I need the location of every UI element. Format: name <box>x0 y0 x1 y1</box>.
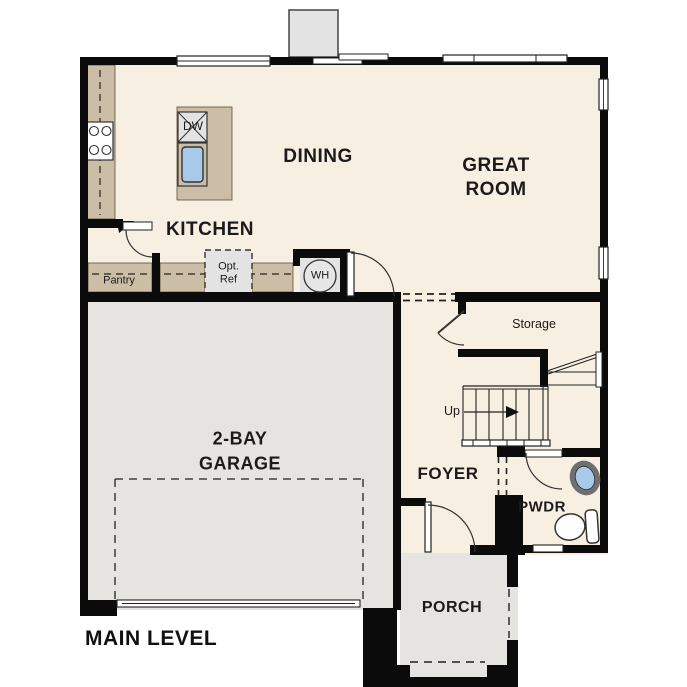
kitchen-sink <box>182 147 203 182</box>
porch-step-block-left <box>397 665 410 677</box>
wh-closet-top-wall <box>293 249 350 258</box>
garage-entry-door-leaf <box>347 252 354 296</box>
right-wall <box>600 57 608 553</box>
garage-bottom-stub <box>80 600 117 616</box>
porch-step <box>410 665 487 677</box>
left-wall <box>80 57 88 616</box>
porch-label: PORCH <box>422 599 482 617</box>
powder-label: PWDR <box>518 498 566 515</box>
front-stub-wall <box>400 498 426 506</box>
great-room-label-line2: ROOM <box>465 179 526 201</box>
storage-bottom-wall <box>458 349 548 357</box>
pantry-door-header <box>123 222 152 230</box>
landing-door-frame <box>596 352 602 387</box>
optional-ref-label: Opt. Ref <box>218 260 239 285</box>
pwdr-top-wall-right <box>562 448 608 457</box>
garage-label-line1: 2-BAY <box>213 429 268 450</box>
pantry-label: Pantry <box>103 275 135 288</box>
toilet-tank-icon <box>585 510 599 544</box>
front-door-leaf <box>425 502 431 552</box>
stair-bottom-rail <box>462 440 550 446</box>
foyer-label: FOYER <box>417 464 478 484</box>
sliding-door-panel <box>339 54 388 60</box>
floors <box>80 10 608 677</box>
porch-bottom-bar <box>363 677 518 687</box>
garage-label-line2: GARAGE <box>199 454 281 475</box>
great-room-label-line1: GREAT <box>462 155 530 177</box>
dining-label: DINING <box>283 146 353 168</box>
storage-label: Storage <box>512 317 556 331</box>
plan-title: MAIN LEVEL <box>85 627 217 651</box>
dishwasher-label: DW <box>183 120 203 134</box>
chimney <box>289 10 338 57</box>
garage-right-wall <box>393 302 401 610</box>
floor-plan: KITCHEN DINING GREAT ROOM 2-BAY GARAGE F… <box>0 0 687 687</box>
pwdr-door-header <box>525 450 562 457</box>
pantry-right-wall <box>152 253 160 302</box>
bottom-counter-a <box>160 263 205 292</box>
stair-closet-stub <box>540 357 548 387</box>
greatroom-window <box>443 55 567 62</box>
pwdr-window <box>533 545 563 552</box>
up-label: Up <box>444 404 460 418</box>
kitchen-label: KITCHEN <box>166 219 254 241</box>
greatroom-bottom-wall <box>455 292 608 302</box>
porch-left-column <box>363 608 397 677</box>
bottom-counter-b <box>252 263 293 292</box>
floor-plan-drawing <box>0 0 687 687</box>
porch-step-block-right <box>487 665 518 677</box>
water-heater-label: WH <box>311 270 329 283</box>
pantry-top-wall <box>80 219 123 228</box>
wh-closet-left-jamb <box>293 258 300 266</box>
